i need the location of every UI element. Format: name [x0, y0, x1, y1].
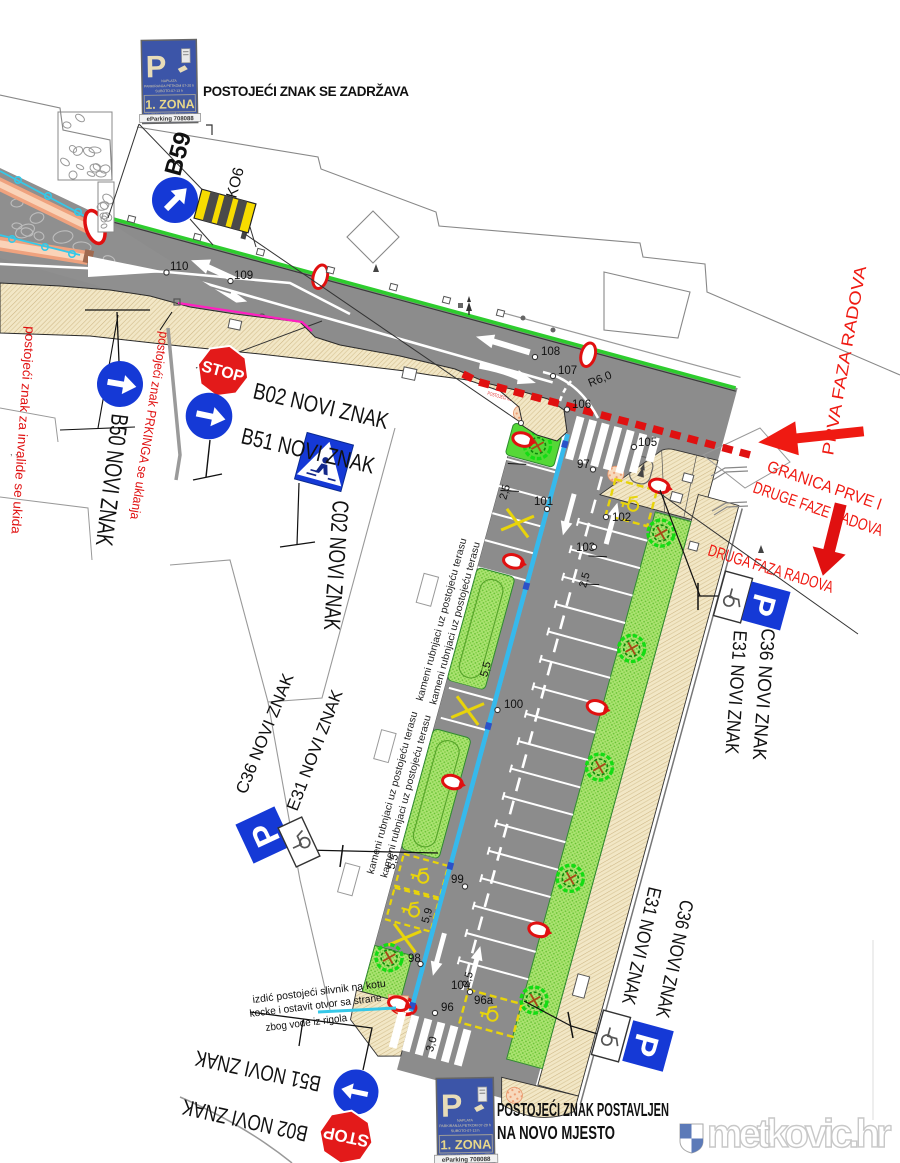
svg-text:1. ZONA: 1. ZONA — [440, 1137, 491, 1153]
svg-text:NAPLATA: NAPLATA — [161, 79, 177, 83]
svg-text:109: 109 — [234, 270, 253, 282]
svg-text:1. ZONA: 1. ZONA — [145, 97, 195, 112]
svg-text:99: 99 — [451, 874, 464, 886]
svg-text:metkovic.hr: metkovic.hr — [707, 1112, 891, 1156]
svg-text:106: 106 — [572, 399, 591, 411]
svg-text:100: 100 — [504, 699, 523, 711]
svg-text:105: 105 — [638, 437, 657, 449]
svg-text:108: 108 — [541, 346, 560, 358]
svg-text:POSTOJEĆI ZNAK SE ZADRŽAVA: POSTOJEĆI ZNAK SE ZADRŽAVA — [203, 84, 409, 99]
svg-text:110: 110 — [170, 261, 188, 273]
svg-text:107: 107 — [558, 365, 577, 377]
svg-text:POSTOJEĆI ZNAK POSTAVLJEN: POSTOJEĆI ZNAK POSTAVLJEN — [497, 1099, 669, 1120]
svg-text:101: 101 — [534, 496, 553, 508]
svg-text:97: 97 — [577, 459, 590, 471]
svg-text:eParking 708088: eParking 708088 — [147, 116, 195, 123]
svg-text:96a: 96a — [474, 995, 494, 1007]
svg-text:eParking 708088: eParking 708088 — [442, 1156, 491, 1163]
svg-text:SUBOTO-07-13 h: SUBOTO-07-13 h — [155, 89, 183, 93]
svg-text:NA NOVO MJESTO: NA NOVO MJESTO — [497, 1122, 615, 1143]
svg-text:102: 102 — [612, 512, 631, 524]
svg-text:SUBOTO-07-13 h: SUBOTO-07-13 h — [451, 1129, 480, 1133]
svg-text:96: 96 — [441, 1002, 454, 1014]
svg-text:NAPLATA: NAPLATA — [457, 1118, 474, 1122]
